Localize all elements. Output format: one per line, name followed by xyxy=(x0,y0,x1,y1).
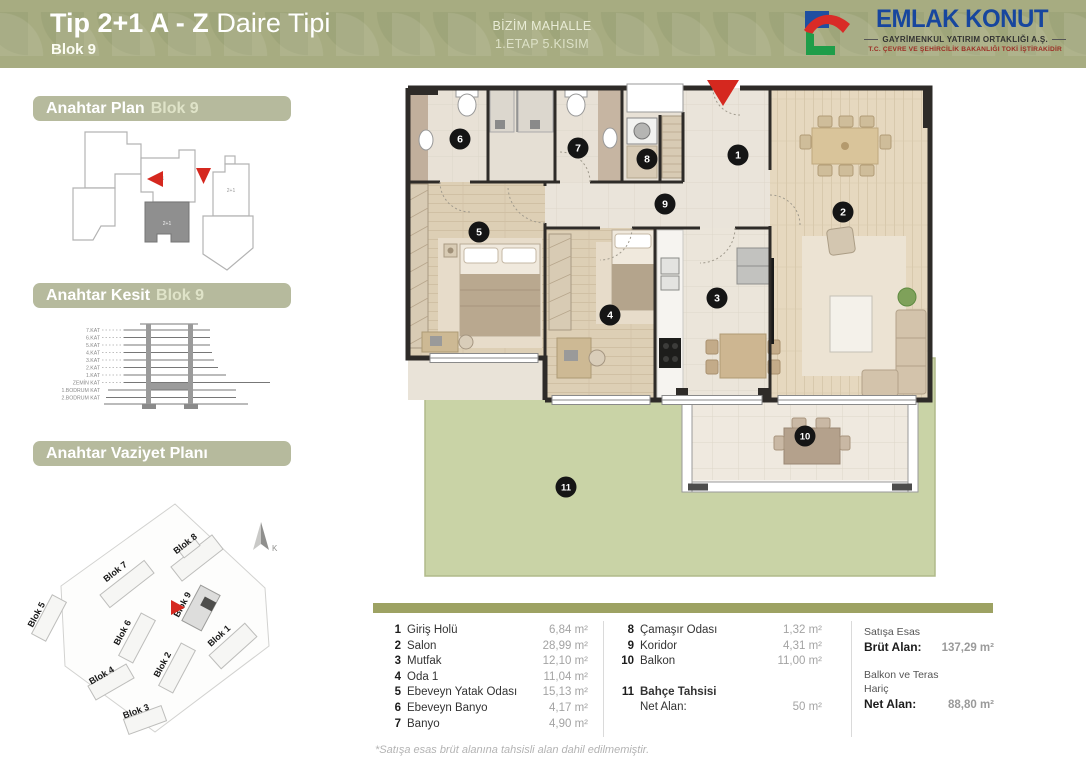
company-logo: EMLAK KONUT GAYRİMENKUL YATIRIM ORTAKLIĞ… xyxy=(802,7,1070,57)
project-line1: BİZİM MAHALLE xyxy=(452,17,632,35)
summary-caption: Balkon ve Teras xyxy=(864,669,994,683)
svg-text:3.KAT: 3.KAT xyxy=(86,358,101,364)
legend-row: 2Salon28,99 m² xyxy=(383,640,588,656)
legend-vertical-divider xyxy=(603,621,604,737)
svg-text:1.BODRUM KAT: 1.BODRUM KAT xyxy=(61,388,100,394)
project-name: BİZİM MAHALLE 1.ETAP 5.KISIM xyxy=(452,17,632,53)
planter-box-icon xyxy=(892,484,912,491)
footnote: *Satışa esas brüt alanına tahsisli alan … xyxy=(375,744,649,756)
planter-box-icon xyxy=(688,484,708,491)
legend-row: 9Koridor4,31 m² xyxy=(616,640,822,656)
site-plan-heading: Anahtar Vaziyet Planı xyxy=(33,441,291,466)
svg-text:11: 11 xyxy=(561,483,572,494)
svg-text:2+1: 2+1 xyxy=(227,188,236,194)
legend-row: 8Çamaşır Odası1,32 m² xyxy=(616,624,822,640)
key-plan-heading: Anahtar PlanBlok 9 xyxy=(33,96,291,121)
legend-summary: Satışa Esas Brüt Alan: 137,29 m² Balkon … xyxy=(864,626,994,713)
emlak-konut-logo-icon xyxy=(802,7,852,57)
svg-text:3: 3 xyxy=(714,293,720,305)
logo-tagline: T.C. ÇEVRE VE ŞEHİRCİLİK BAKANLIĞI TOKİ … xyxy=(868,46,1062,53)
logo-rule-left xyxy=(864,39,878,40)
net-area-row: Net Alan: 88,80 m² xyxy=(864,697,994,713)
north-arrow-icon: K xyxy=(253,522,278,553)
page-title: Tip 2+1 A - Z Daire Tipi xyxy=(50,8,330,39)
svg-text:4.KAT: 4.KAT xyxy=(86,350,101,356)
legend-row: Net Alan:50 m² xyxy=(616,701,822,717)
legend-row: 11Bahçe Tahsisi xyxy=(616,686,822,702)
floor-plan: 1234567891011 xyxy=(400,78,940,585)
legend-row: 6Ebeveyn Banyo4,17 m² xyxy=(383,702,588,718)
svg-text:5.KAT: 5.KAT xyxy=(86,343,101,349)
page-title-suffix: Daire Tipi xyxy=(216,8,330,38)
balcony xyxy=(682,402,918,492)
svg-text:6: 6 xyxy=(457,134,463,146)
summary-caption: Hariç xyxy=(864,683,994,697)
brochure-sheet: Tip 2+1 A - Z Daire Tipi Blok 9 BİZİM MA… xyxy=(0,0,1086,768)
svg-text:2.BODRUM KAT: 2.BODRUM KAT xyxy=(61,395,100,401)
legend-row: 4Oda 111,04 m² xyxy=(383,671,588,687)
svg-text:9: 9 xyxy=(662,199,668,211)
svg-text:ZEMİN KAT: ZEMİN KAT xyxy=(73,379,101,386)
logo-brand-name: EMLAK KONUT xyxy=(876,7,1048,32)
svg-text:2: 2 xyxy=(840,207,846,219)
plant-icon xyxy=(898,288,916,306)
legend-row: 5Ebeveyn Yatak Odası15,13 m² xyxy=(383,686,588,702)
shower-stalls xyxy=(490,90,553,132)
svg-text:2.KAT: 2.KAT xyxy=(86,365,101,371)
entry-niche xyxy=(627,84,683,112)
svg-text:7.KAT: 7.KAT xyxy=(86,328,101,334)
legend-vertical-divider xyxy=(851,621,852,737)
svg-text:K: K xyxy=(272,544,278,553)
gross-area-row: Brüt Alan: 137,29 m² xyxy=(864,640,994,656)
svg-text:4: 4 xyxy=(607,310,613,322)
svg-text:5: 5 xyxy=(476,227,482,239)
svg-text:2+1: 2+1 xyxy=(163,221,172,227)
page-subtitle-block: Blok 9 xyxy=(51,41,96,58)
project-line2: 1.ETAP 5.KISIM xyxy=(452,35,632,53)
header-band: Tip 2+1 A - Z Daire Tipi Blok 9 BİZİM MA… xyxy=(0,0,1086,68)
page-title-type: Tip 2+1 A - Z xyxy=(50,8,209,38)
logo-subtitle: GAYRİMENKUL YATIRIM ORTAKLIĞI A.Ş. xyxy=(860,35,1070,44)
svg-text:7: 7 xyxy=(575,143,581,155)
legend-divider-bar xyxy=(373,603,993,613)
laundry-room-fixtures xyxy=(627,118,657,178)
legend-row: 1Giriş Holü6,84 m² xyxy=(383,624,588,640)
hall-wardrobe xyxy=(662,116,682,178)
key-section-diagram: 7.KAT 6.KAT 5.KAT 4.KAT 3.KAT 2.KAT 1.KA… xyxy=(48,312,273,422)
site-plan-diagram: Blok 1 Blok 2 Blok 3 Blok 4 Blok 5 Blok … xyxy=(25,468,297,758)
logo-rule-right xyxy=(1052,39,1066,40)
key-plan-marker-down-icon xyxy=(196,168,211,184)
svg-text:1.KAT: 1.KAT xyxy=(86,373,101,379)
legend-row: 10Balkon11,00 m² xyxy=(616,655,822,671)
svg-text:8: 8 xyxy=(644,154,650,166)
summary-caption: Satışa Esas xyxy=(864,626,994,640)
legend-column-2: 8Çamaşır Odası1,32 m²9Koridor4,31 m²10Ba… xyxy=(616,624,822,717)
legend-row: 7Banyo4,90 m² xyxy=(383,718,588,734)
legend-column-1: 1Giriş Holü6,84 m²2Salon28,99 m²3Mutfak1… xyxy=(383,624,588,733)
key-section-highlighted-floor xyxy=(151,383,188,390)
logo-text-block: EMLAK KONUT GAYRİMENKUL YATIRIM ORTAKLIĞ… xyxy=(860,7,1070,53)
key-section-heading: Anahtar KesitBlok 9 xyxy=(33,283,291,308)
svg-text:10: 10 xyxy=(800,432,811,443)
svg-text:1: 1 xyxy=(735,150,741,162)
svg-text:6.KAT: 6.KAT xyxy=(86,335,101,341)
legend-row: 3Mutfak12,10 m² xyxy=(383,655,588,671)
key-plan-diagram: 2+1 2+1 2+1 xyxy=(55,122,260,277)
